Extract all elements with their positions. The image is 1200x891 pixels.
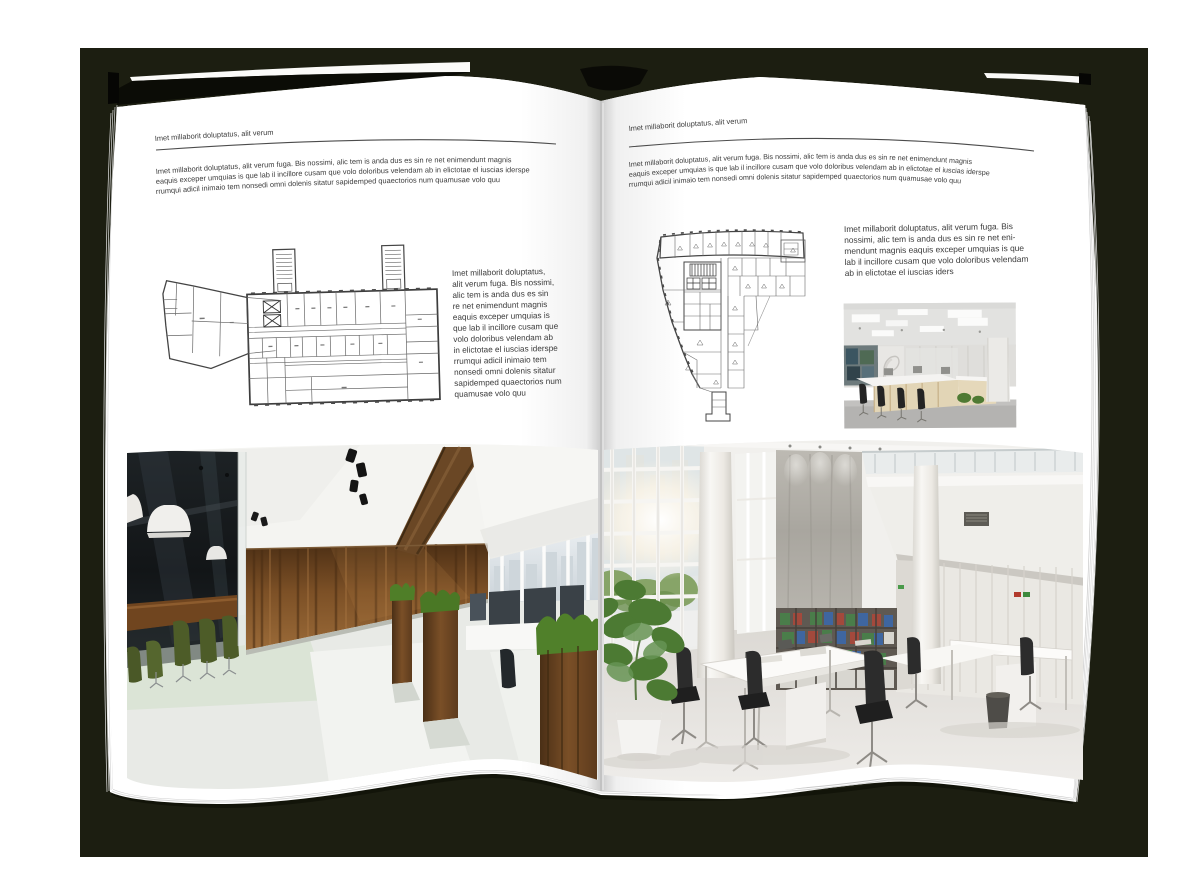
svg-text:ab in elictotae el iuscias ide: ab in elictotae el iuscias iders: [845, 266, 954, 278]
svg-text:quamusae volo quu: quamusae volo quu: [454, 388, 526, 399]
